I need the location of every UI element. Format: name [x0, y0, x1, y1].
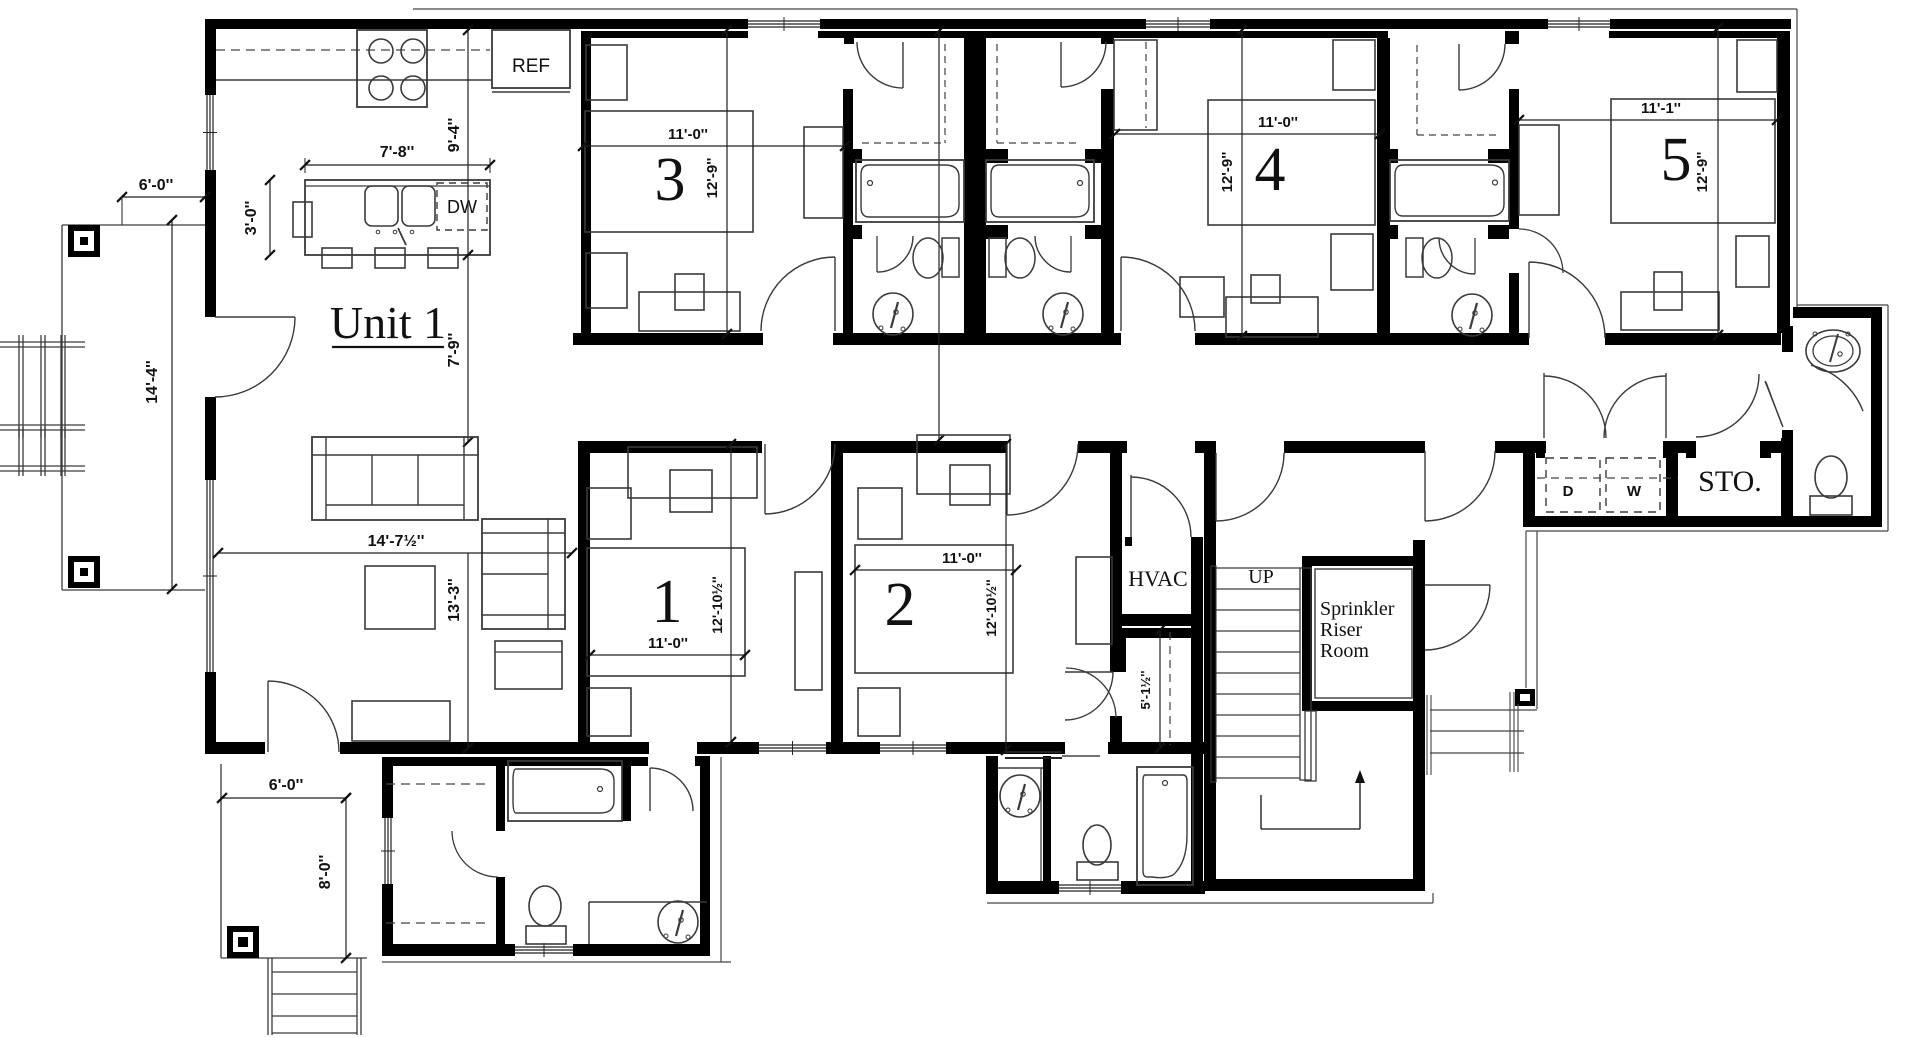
- svg-text:11'-0'': 11'-0'': [668, 126, 708, 143]
- svg-text:11'-1'': 11'-1'': [1641, 100, 1681, 117]
- svg-text:12'-9'': 12'-9'': [704, 158, 721, 199]
- svg-text:4: 4: [1255, 136, 1286, 204]
- svg-text:HVAC: HVAC: [1128, 566, 1188, 591]
- svg-text:13'-3'': 13'-3'': [446, 578, 463, 621]
- svg-text:12'-10½'': 12'-10½'': [709, 576, 725, 633]
- svg-text:12'-9'': 12'-9'': [1694, 152, 1711, 193]
- svg-text:D: D: [1563, 483, 1574, 500]
- svg-text:11'-0'': 11'-0'': [648, 635, 688, 652]
- svg-text:9'-4'': 9'-4'': [446, 118, 463, 153]
- svg-text:3'-0'': 3'-0'': [243, 201, 260, 236]
- svg-text:12'-10½'': 12'-10½'': [983, 579, 999, 636]
- svg-text:5: 5: [1661, 126, 1692, 194]
- svg-text:DW: DW: [447, 197, 477, 217]
- svg-text:6'-0'': 6'-0'': [269, 777, 304, 794]
- svg-text:REF: REF: [512, 56, 550, 77]
- svg-text:Room: Room: [1320, 640, 1369, 662]
- svg-text:12'-9'': 12'-9'': [1219, 152, 1236, 193]
- svg-text:UP: UP: [1248, 566, 1274, 588]
- svg-text:2: 2: [885, 571, 916, 639]
- svg-text:1: 1: [652, 568, 683, 636]
- svg-text:6'-0'': 6'-0'': [139, 177, 174, 194]
- svg-text:14'-7½'': 14'-7½'': [368, 533, 425, 550]
- svg-text:8'-0'': 8'-0'': [317, 855, 334, 890]
- svg-text:5'-1½'': 5'-1½'': [1138, 671, 1153, 710]
- svg-text:7'-8'': 7'-8'': [380, 144, 415, 161]
- svg-text:Riser: Riser: [1320, 619, 1363, 641]
- svg-text:11'-0'': 11'-0'': [1258, 114, 1298, 131]
- svg-text:3: 3: [655, 146, 686, 214]
- svg-text:Sprinkler: Sprinkler: [1320, 598, 1395, 620]
- svg-text:Unit 1: Unit 1: [330, 297, 446, 348]
- svg-text:W: W: [1627, 483, 1642, 500]
- svg-text:7'-9'': 7'-9'': [446, 333, 463, 368]
- svg-text:STO.: STO.: [1698, 465, 1762, 498]
- svg-text:11'-0'': 11'-0'': [942, 550, 982, 567]
- svg-text:14'-4'': 14'-4'': [144, 360, 161, 403]
